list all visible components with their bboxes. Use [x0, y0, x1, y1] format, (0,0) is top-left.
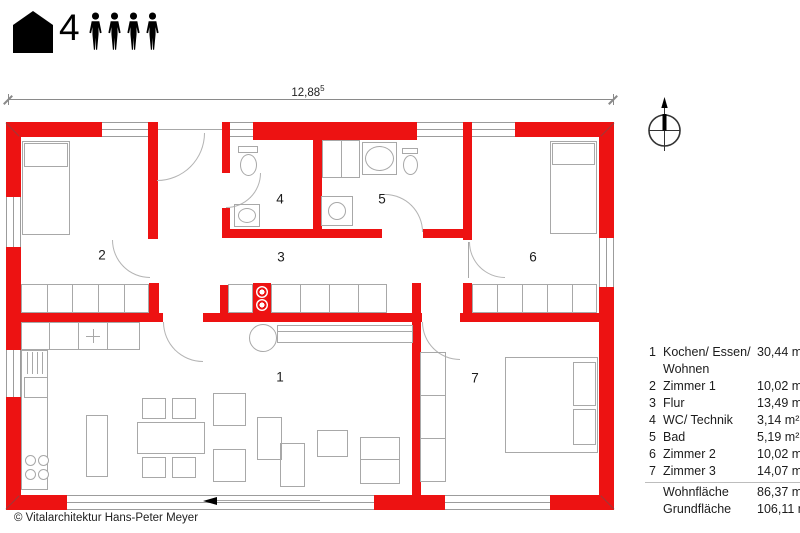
legend-row: 6Zimmer 210,02 m²: [645, 446, 800, 463]
legend-row-total: Wohnfläche86,37 m²: [645, 484, 800, 501]
door-leaf: [468, 242, 469, 278]
legend-divider: [645, 482, 800, 483]
dimension-label: 12,885: [276, 84, 340, 99]
chimney-flue: [256, 286, 268, 298]
coffee-table: [257, 417, 282, 460]
wall-segment: [253, 122, 417, 140]
wall-segment: [6, 247, 21, 350]
wall-segment: [599, 122, 614, 238]
armchair: [213, 393, 246, 426]
side-table: [280, 443, 305, 487]
room-label-2: 2: [98, 248, 106, 263]
chimney-flue: [256, 299, 268, 311]
window: [230, 122, 253, 137]
round-table: [249, 324, 277, 352]
wall-segment: [220, 285, 228, 313]
door-arc-room2: [112, 240, 150, 278]
door-arc-wc: [226, 173, 261, 208]
wall-segment: [203, 313, 422, 322]
room-label-5: 5: [378, 192, 386, 207]
door-arc-room6: [469, 242, 505, 278]
kitchen-counter: [21, 322, 140, 350]
dining-table: [137, 422, 205, 454]
wall-segment: [412, 283, 421, 313]
wall-segment: [599, 287, 614, 510]
closet-row: [472, 284, 597, 313]
legend-row: 3Flur13,49 m²: [645, 395, 800, 412]
bathtub-basin: [365, 146, 394, 171]
person-icon: [106, 11, 123, 51]
legend-row: 1Kochen/ Essen/ Wohnen30,44 m²: [645, 344, 800, 378]
floorplan-sheet: { "header": { "occupants_count": "4", "i…: [0, 0, 800, 533]
person-icon: [144, 11, 161, 51]
armchair: [213, 449, 246, 482]
wall-segment: [550, 495, 614, 510]
wall-segment: [222, 229, 382, 238]
toilet-tank: [402, 148, 418, 154]
hob-ring: [38, 469, 49, 480]
window: [445, 495, 550, 510]
chair: [172, 398, 196, 419]
door-arc-bath: [385, 194, 423, 232]
room-label-1: 1: [276, 370, 284, 385]
room-label-7: 7: [471, 371, 479, 386]
chair: [142, 398, 166, 419]
window: [6, 350, 21, 397]
sofa: [360, 437, 400, 484]
sideboard: [86, 415, 108, 477]
chair: [172, 457, 196, 478]
toilet-tank: [238, 146, 258, 153]
legend-row: 5Bad5,19 m²: [645, 429, 800, 446]
kitchen-appliance: [24, 377, 48, 398]
wall-segment: [463, 122, 472, 240]
window: [67, 495, 374, 510]
person-icon: [87, 11, 104, 51]
washing-machine-drum: [328, 202, 346, 220]
window: [599, 238, 614, 287]
north-compass-icon: [645, 94, 685, 156]
occupants-count: 4: [59, 9, 80, 46]
toilet-bowl: [403, 155, 418, 175]
side-table: [317, 430, 348, 457]
occupants-icons: [87, 11, 161, 51]
room-label-3: 3: [277, 250, 285, 265]
bed-pillow: [573, 409, 596, 445]
bed-pillow: [552, 143, 595, 165]
wall-segment: [222, 122, 230, 173]
entrance-arrow-icon: [203, 497, 217, 505]
legend-row: 2Zimmer 110,02 m²: [645, 378, 800, 395]
wall-segment: [423, 229, 468, 238]
legend-row: 7Zimmer 314,07 m²: [645, 463, 800, 480]
window: [472, 122, 515, 137]
chair: [142, 457, 166, 478]
wall-segment: [6, 122, 21, 197]
window: [102, 122, 148, 137]
bed-pillow: [24, 143, 68, 167]
room-label-4: 4: [276, 192, 284, 207]
wall-segment: [374, 495, 445, 510]
hob-ring: [38, 455, 49, 466]
room-label-6: 6: [529, 250, 537, 265]
room-legend: 1Kochen/ Essen/ Wohnen30,44 m² 2Zimmer 1…: [645, 344, 800, 518]
wall-segment: [6, 397, 21, 510]
copyright-text: © Vitalarchitektur Hans-Peter Meyer: [14, 512, 198, 524]
window: [6, 197, 21, 247]
closet-row: [21, 284, 149, 313]
window: [417, 122, 463, 137]
sink-cross: [93, 329, 94, 343]
hob-ring: [25, 455, 36, 466]
legend-row: 4WC/ Technik3,14 m²: [645, 412, 800, 429]
toilet-bowl: [240, 154, 257, 176]
sideboard: [277, 325, 413, 343]
door-arc-kitchen: [163, 322, 203, 362]
door-arc-entrance: [157, 133, 205, 181]
house-icon: [13, 11, 53, 53]
wardrobe: [420, 352, 446, 482]
hob-ring: [25, 469, 36, 480]
wall-segment: [21, 313, 163, 322]
sink-basin: [238, 208, 256, 223]
bed-pillow: [573, 362, 596, 406]
legend-row-total: Grundfläche106,11 m²: [645, 501, 800, 518]
wall-segment: [8, 122, 102, 137]
person-icon: [125, 11, 142, 51]
closet-cell: [228, 284, 253, 313]
wall-segment: [460, 313, 601, 322]
